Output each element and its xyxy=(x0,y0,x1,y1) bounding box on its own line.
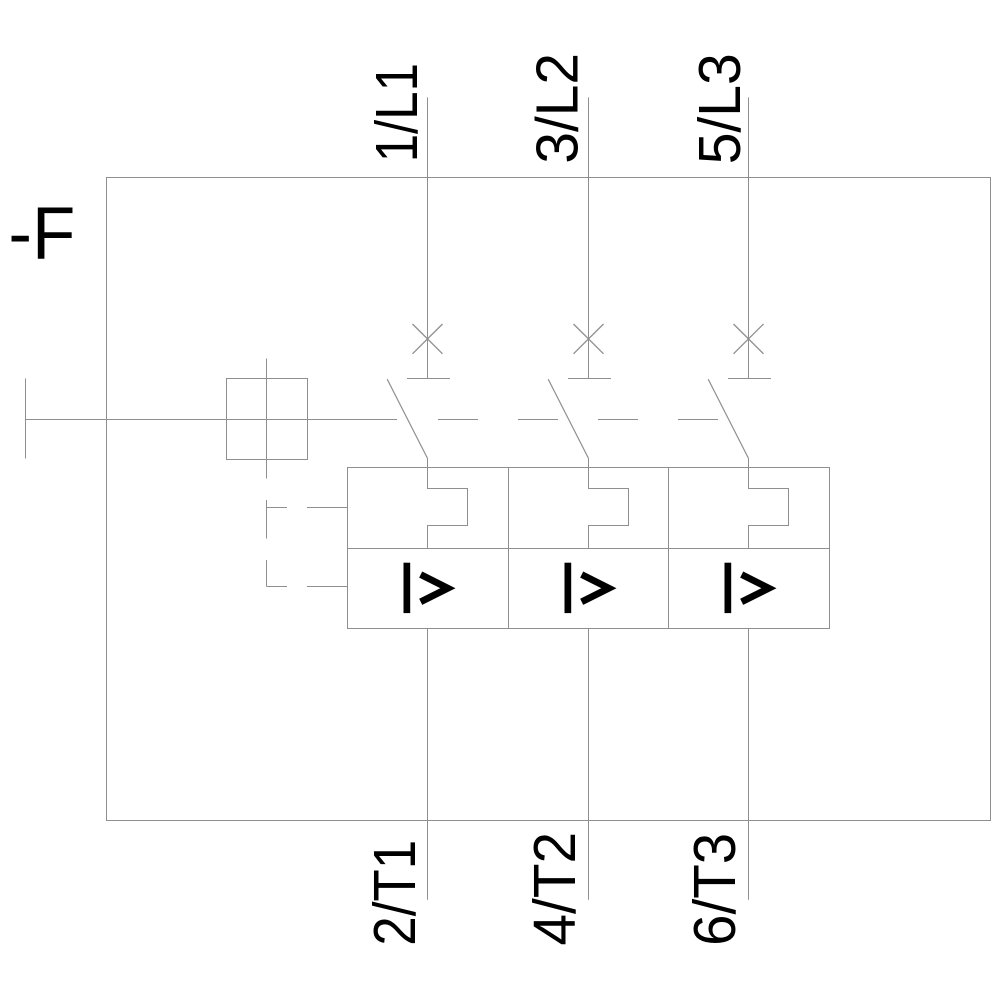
svg-text:1/L1: 1/L1 xyxy=(363,63,430,162)
svg-text:-F: -F xyxy=(8,192,75,275)
svg-text:4/T2: 4/T2 xyxy=(522,832,589,946)
svg-text:5/L3: 5/L3 xyxy=(687,53,753,164)
svg-text:2/T1: 2/T1 xyxy=(361,840,428,946)
svg-text:6/T3: 6/T3 xyxy=(682,833,749,946)
svg-text:3/L2: 3/L2 xyxy=(525,53,591,164)
